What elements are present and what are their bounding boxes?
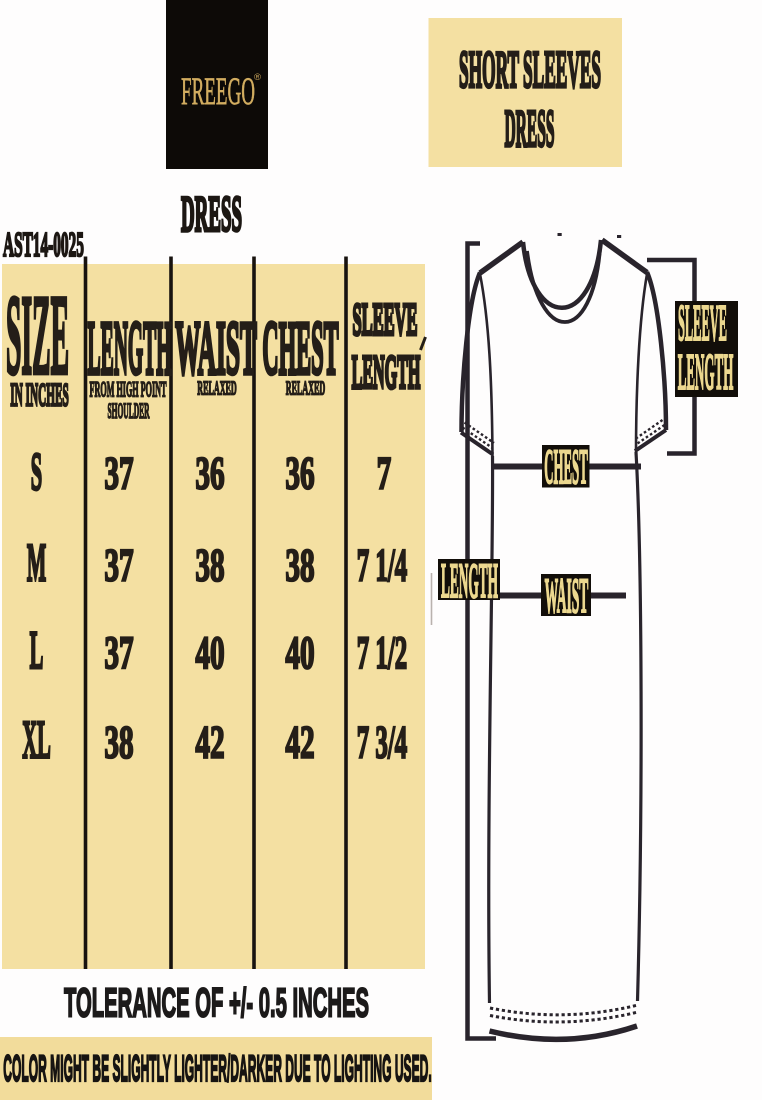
- svg-text:®: ®: [254, 72, 261, 83]
- svg-text:37: 37: [104, 540, 133, 592]
- svg-text:LENGTH: LENGTH: [352, 345, 421, 399]
- svg-text:37: 37: [104, 627, 133, 679]
- svg-text:42: 42: [285, 717, 314, 769]
- svg-text:S: S: [31, 442, 42, 501]
- svg-text:38: 38: [195, 540, 224, 592]
- svg-text:7 1/4: 7 1/4: [357, 539, 408, 591]
- svg-text:7: 7: [377, 448, 392, 500]
- svg-text:RELAXED: RELAXED: [286, 377, 326, 399]
- svg-text:40: 40: [285, 627, 314, 679]
- svg-text:WAIST: WAIST: [545, 567, 589, 623]
- svg-text:TOLERANCE OF +/- 0.5 INCHES: TOLERANCE OF +/- 0.5 INCHES: [64, 980, 369, 1026]
- svg-text:LENGTH: LENGTH: [678, 344, 734, 402]
- svg-text:COLOR MIGHT BE SLIGHTLY LIGHTE: COLOR MIGHT BE SLIGHTLY LIGHTER/DARKER D…: [3, 1047, 431, 1089]
- svg-text:DRESS: DRESS: [504, 100, 554, 158]
- svg-text:SLEEVE: SLEEVE: [353, 296, 418, 345]
- svg-text:CHEST: CHEST: [544, 438, 588, 494]
- svg-text:IN INCHES: IN INCHES: [10, 377, 69, 413]
- svg-text:L: L: [30, 620, 44, 679]
- svg-text:7 1/2: 7 1/2: [357, 627, 408, 679]
- svg-text:36: 36: [195, 448, 224, 500]
- svg-text:7 3/4: 7 3/4: [357, 716, 408, 768]
- svg-text:38: 38: [104, 717, 133, 769]
- svg-text:M: M: [27, 533, 46, 592]
- svg-text:AST14-0025: AST14-0025: [3, 225, 84, 264]
- svg-text:XL: XL: [22, 710, 50, 769]
- svg-text:FREEGO: FREEGO: [181, 70, 255, 113]
- svg-text:38: 38: [285, 540, 314, 592]
- svg-text:37: 37: [104, 448, 133, 500]
- svg-text:SHOULDER: SHOULDER: [108, 398, 150, 423]
- svg-text:36: 36: [285, 448, 314, 500]
- svg-text:42: 42: [195, 717, 224, 769]
- svg-text:40: 40: [195, 627, 224, 679]
- svg-text:RELAXED: RELAXED: [197, 377, 237, 399]
- svg-text:SHORT SLEEVES: SHORT SLEEVES: [459, 40, 601, 99]
- svg-text:LENGTH: LENGTH: [441, 552, 498, 608]
- svg-text:DRESS: DRESS: [181, 187, 242, 243]
